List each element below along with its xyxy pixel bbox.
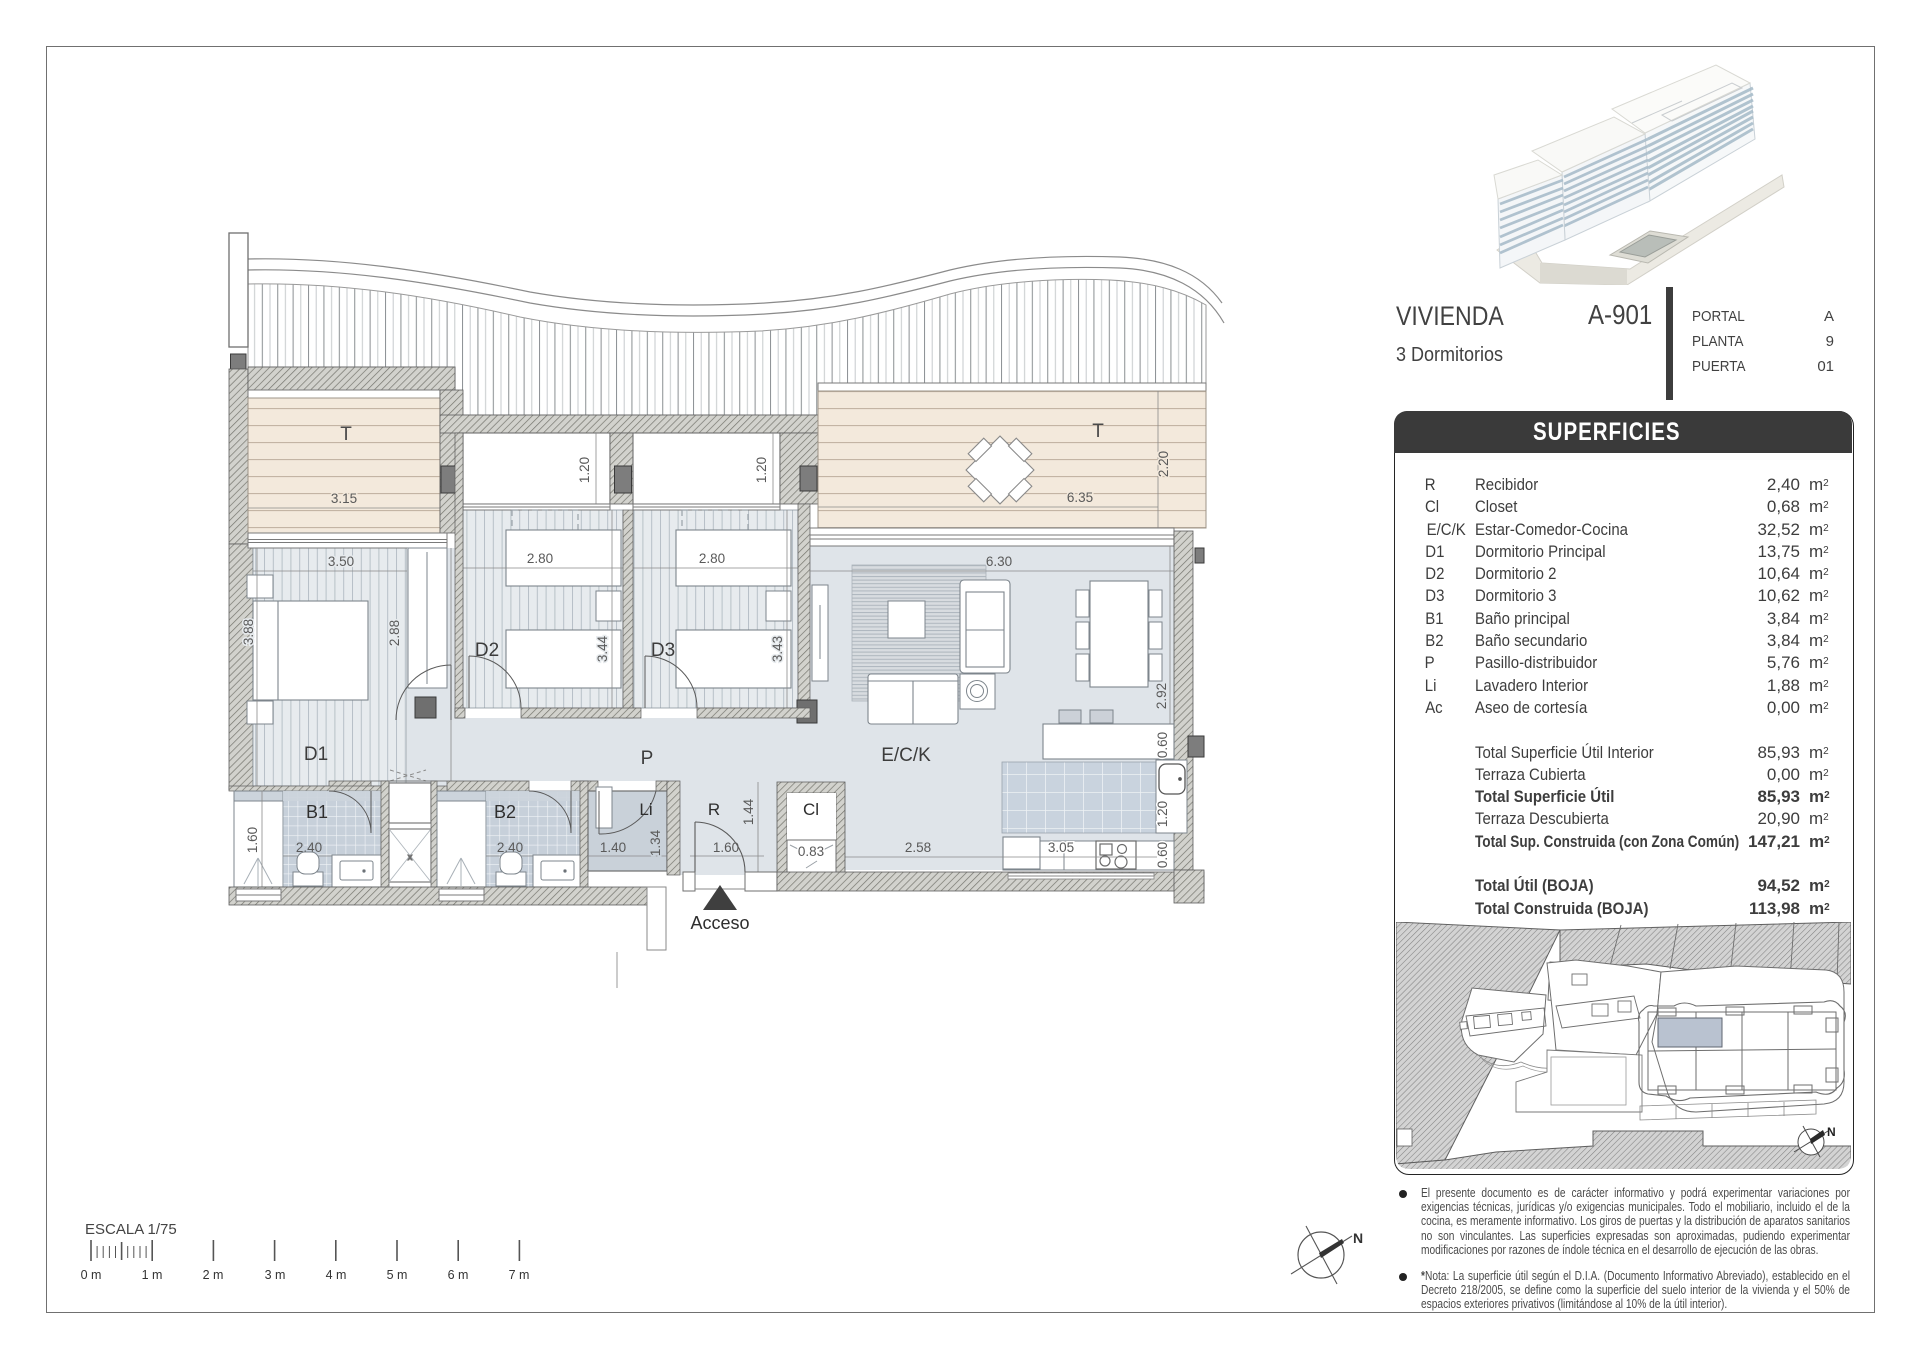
svg-text:6.35: 6.35 xyxy=(1067,490,1093,505)
svg-text:1.20: 1.20 xyxy=(754,457,769,483)
svg-text:D1: D1 xyxy=(304,744,328,765)
svg-text:1.40: 1.40 xyxy=(600,840,626,855)
svg-text:2.20: 2.20 xyxy=(1156,451,1171,477)
svg-text:1.34: 1.34 xyxy=(648,829,663,856)
svg-text:1 m: 1 m xyxy=(142,1268,163,1282)
svg-text:0 m: 0 m xyxy=(81,1268,102,1282)
svg-text:2.80: 2.80 xyxy=(699,551,725,566)
svg-text:P: P xyxy=(641,748,654,769)
svg-text:N: N xyxy=(1353,1230,1363,1246)
svg-text:2 m: 2 m xyxy=(203,1268,224,1282)
svg-text:Acceso: Acceso xyxy=(690,913,749,933)
svg-text:5 m: 5 m xyxy=(387,1268,408,1282)
svg-text:3.88: 3.88 xyxy=(241,619,256,645)
svg-text:D3: D3 xyxy=(651,640,675,661)
svg-text:T: T xyxy=(1092,421,1104,442)
svg-text:N: N xyxy=(1827,1125,1836,1139)
svg-text:3.50: 3.50 xyxy=(328,554,354,569)
svg-text:6 m: 6 m xyxy=(448,1268,469,1282)
svg-text:3.43: 3.43 xyxy=(770,636,785,662)
svg-text:7 m: 7 m xyxy=(509,1268,530,1282)
svg-text:ESCALA 1/75: ESCALA 1/75 xyxy=(85,1221,177,1238)
svg-text:3 m: 3 m xyxy=(265,1268,286,1282)
svg-text:2.92: 2.92 xyxy=(1154,683,1169,709)
svg-text:3.44: 3.44 xyxy=(595,635,610,662)
svg-text:4 m: 4 m xyxy=(326,1268,347,1282)
svg-text:0.83: 0.83 xyxy=(798,844,824,859)
svg-text:3.15: 3.15 xyxy=(331,491,357,506)
svg-text:Li: Li xyxy=(639,800,652,819)
svg-text:0.60: 0.60 xyxy=(1155,732,1170,758)
svg-text:B2: B2 xyxy=(494,802,516,822)
svg-text:E/C/K: E/C/K xyxy=(881,745,931,766)
svg-text:1.20: 1.20 xyxy=(577,457,592,483)
svg-text:1.20: 1.20 xyxy=(1155,801,1170,827)
svg-text:2.58: 2.58 xyxy=(905,840,931,855)
svg-text:D2: D2 xyxy=(475,640,499,661)
svg-text:T: T xyxy=(340,424,352,445)
svg-text:1.44: 1.44 xyxy=(741,798,756,825)
svg-text:2.80: 2.80 xyxy=(527,551,553,566)
svg-text:Cl: Cl xyxy=(803,800,819,819)
svg-text:B1: B1 xyxy=(306,802,328,822)
svg-text:2.88: 2.88 xyxy=(387,620,402,646)
svg-text:3.05: 3.05 xyxy=(1048,840,1074,855)
svg-text:1.60: 1.60 xyxy=(245,827,260,853)
svg-text:R: R xyxy=(708,800,720,819)
svg-text:6.30: 6.30 xyxy=(986,554,1012,569)
svg-text:x: x xyxy=(408,852,413,862)
svg-text:0.60: 0.60 xyxy=(1155,842,1170,868)
